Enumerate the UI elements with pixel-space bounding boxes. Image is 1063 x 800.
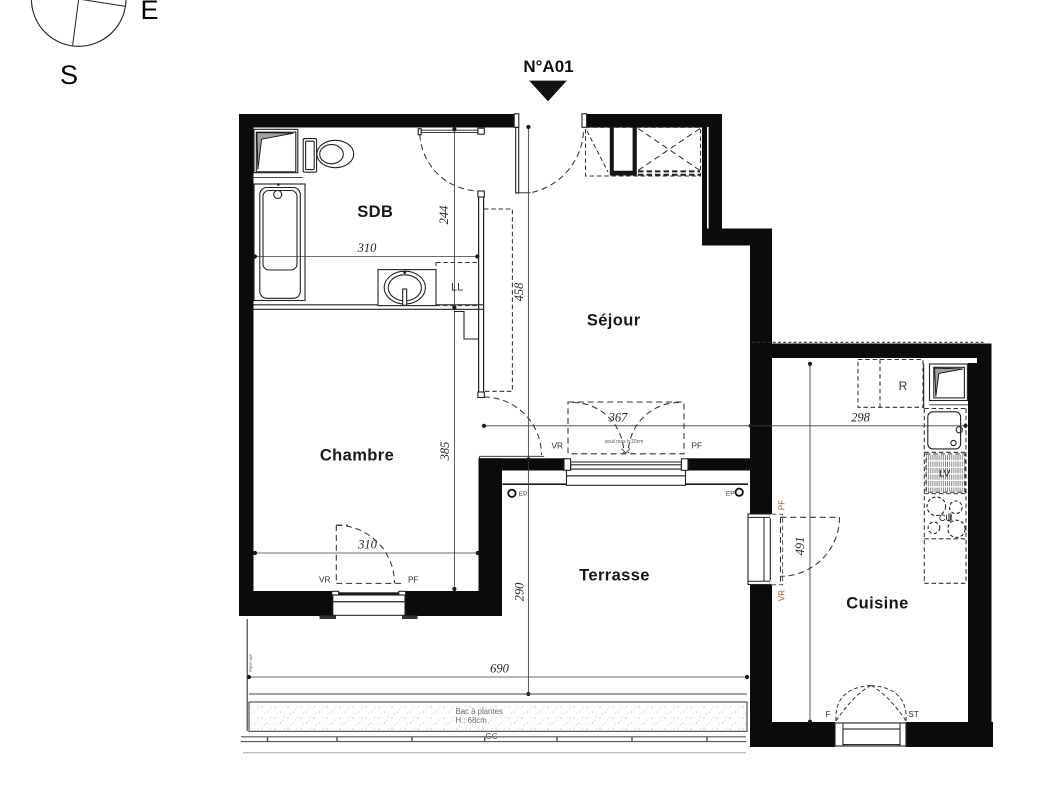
svg-text:310: 310 [357,538,378,552]
svg-text:seuil max h:20cm: seuil max h:20cm [605,439,644,445]
svg-text:VR: VR [319,574,331,584]
svg-text:N°A01: N°A01 [523,57,573,76]
svg-text:Séjour: Séjour [587,312,641,330]
svg-text:S: S [60,60,78,90]
svg-text:EP: EP [519,491,528,498]
svg-text:Terrasse: Terrasse [579,567,650,585]
svg-text:244: 244 [437,206,451,225]
svg-text:PF: PF [408,574,419,584]
svg-text:CU: CU [939,513,952,523]
svg-text:VR: VR [552,440,564,450]
svg-text:PF: PF [778,500,787,510]
svg-text:E: E [141,0,159,25]
svg-text:LL: LL [451,282,463,294]
svg-text:PF: PF [692,440,703,450]
svg-text:SDB: SDB [357,203,393,221]
svg-text:EP: EP [726,491,735,498]
svg-text:385: 385 [438,442,452,462]
svg-text:310: 310 [357,241,378,255]
svg-text:H : 68cm: H : 68cm [456,716,487,725]
svg-text:Bac à plantes: Bac à plantes [456,707,503,716]
svg-text:Chambre: Chambre [320,447,394,465]
svg-text:F: F [825,709,830,719]
svg-text:290: 290 [513,582,527,602]
svg-text:367: 367 [608,410,629,424]
svg-text:ST: ST [908,709,919,719]
svg-text:690: 690 [490,662,510,676]
svg-text:298: 298 [851,410,871,424]
svg-text:VR: VR [778,590,787,601]
svg-text:Cuisine: Cuisine [846,595,908,613]
svg-text:491: 491 [793,537,807,556]
svg-text:R: R [899,379,908,393]
svg-text:458: 458 [512,282,526,302]
svg-text:Pare-vue: Pare-vue [248,654,253,672]
svg-text:LV: LV [939,469,951,480]
